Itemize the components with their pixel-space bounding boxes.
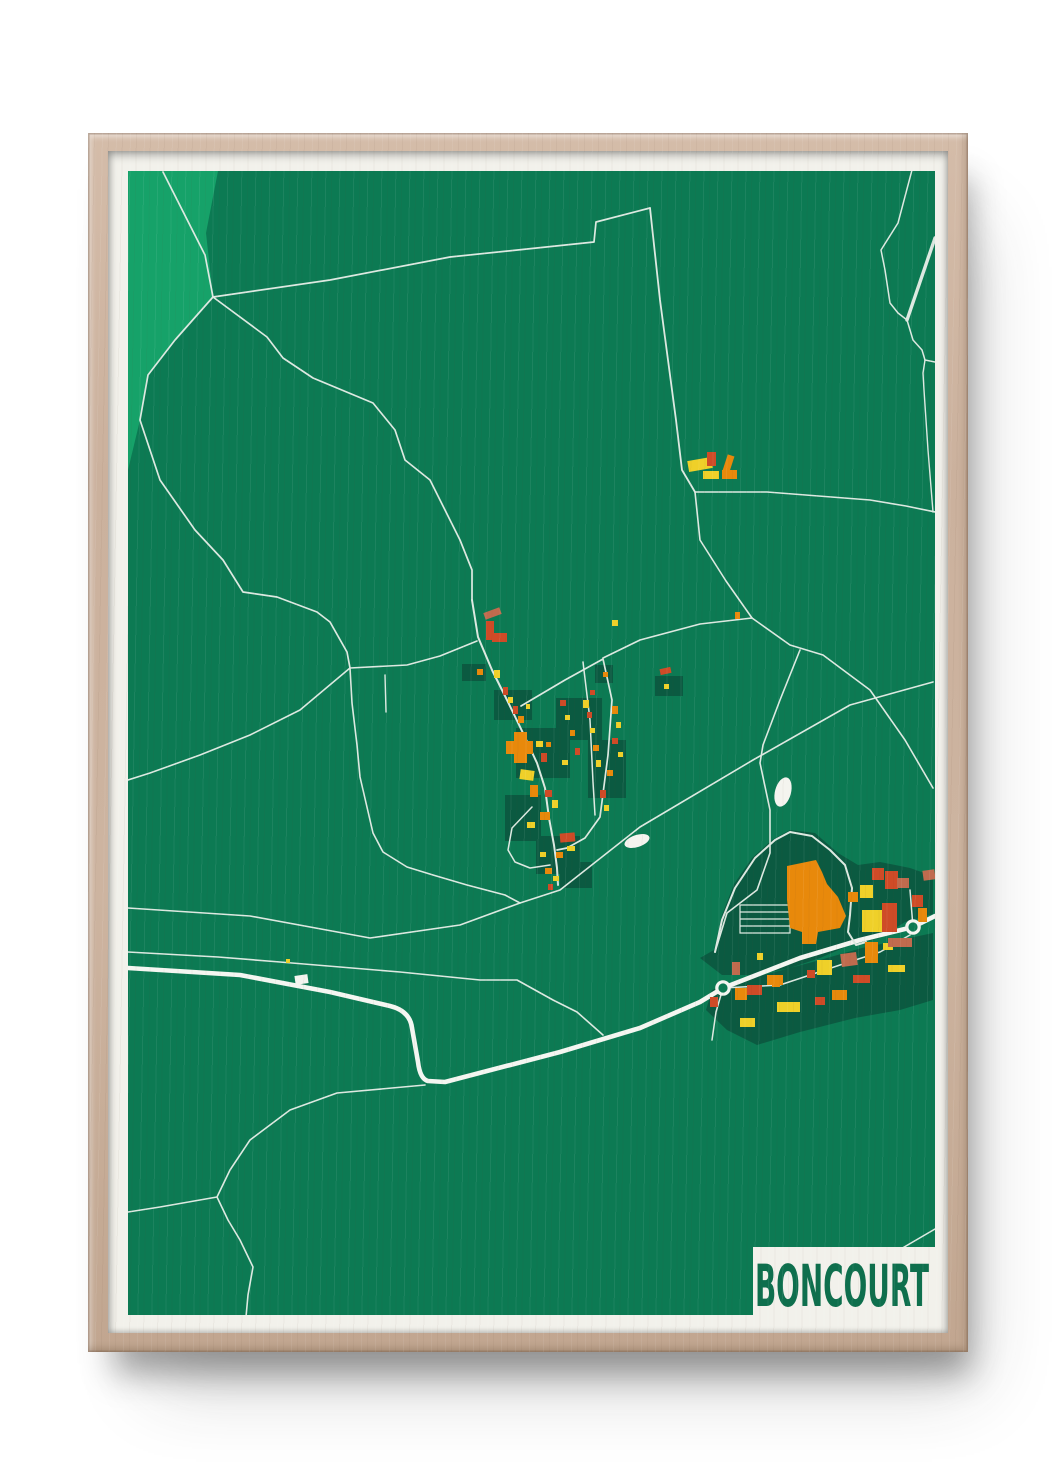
building bbox=[888, 938, 912, 947]
title-block: BONCOURT bbox=[753, 1247, 935, 1315]
building bbox=[922, 869, 935, 881]
building bbox=[530, 785, 538, 797]
building bbox=[536, 741, 543, 747]
building bbox=[832, 990, 847, 1000]
poster-mat: BONCOURT bbox=[108, 151, 948, 1333]
building bbox=[707, 452, 716, 466]
building bbox=[513, 706, 518, 714]
building bbox=[503, 687, 508, 695]
building bbox=[575, 748, 580, 755]
building bbox=[722, 470, 737, 479]
building bbox=[548, 884, 553, 890]
building bbox=[527, 822, 535, 828]
building bbox=[600, 790, 606, 798]
building bbox=[593, 745, 599, 751]
village-plot bbox=[560, 862, 592, 888]
building bbox=[710, 997, 718, 1007]
building bbox=[567, 846, 575, 851]
building bbox=[807, 970, 815, 978]
building bbox=[918, 908, 927, 922]
building bbox=[703, 471, 719, 479]
building bbox=[897, 878, 909, 888]
building bbox=[888, 965, 905, 972]
building bbox=[477, 669, 483, 675]
roundabout bbox=[717, 982, 729, 994]
road-field-stub bbox=[385, 675, 386, 712]
building bbox=[777, 1002, 800, 1012]
poster-frame: BONCOURT bbox=[88, 133, 968, 1352]
building bbox=[596, 760, 601, 767]
building bbox=[815, 997, 825, 1005]
building bbox=[526, 704, 530, 709]
building bbox=[583, 700, 589, 708]
building bbox=[732, 962, 740, 975]
building bbox=[607, 770, 613, 776]
building bbox=[492, 633, 507, 642]
building bbox=[840, 952, 858, 967]
building bbox=[518, 716, 524, 723]
building bbox=[664, 684, 669, 689]
building bbox=[872, 868, 884, 880]
building bbox=[545, 790, 552, 797]
building bbox=[612, 620, 618, 626]
building bbox=[541, 753, 547, 762]
building bbox=[604, 805, 609, 811]
boncourt-map-poster: BONCOURT bbox=[128, 171, 935, 1315]
building bbox=[560, 832, 576, 842]
building bbox=[562, 760, 568, 765]
map-layers bbox=[128, 171, 935, 1315]
building bbox=[912, 895, 923, 907]
building bbox=[494, 670, 500, 678]
building bbox=[519, 769, 534, 781]
building bbox=[882, 903, 897, 932]
building bbox=[570, 730, 575, 736]
page-background: BONCOURT bbox=[0, 0, 1058, 1480]
building bbox=[603, 672, 608, 677]
building bbox=[553, 876, 559, 881]
building bbox=[560, 700, 566, 706]
building bbox=[540, 852, 546, 857]
building bbox=[556, 852, 563, 858]
building bbox=[545, 868, 552, 874]
building bbox=[853, 975, 870, 983]
building bbox=[612, 706, 618, 714]
building bbox=[587, 712, 592, 718]
poster-title: BONCOURT bbox=[755, 1252, 929, 1315]
building bbox=[618, 752, 623, 757]
building bbox=[552, 800, 558, 808]
building bbox=[860, 885, 873, 898]
building bbox=[735, 612, 740, 619]
building bbox=[772, 980, 780, 987]
building bbox=[540, 812, 550, 820]
building bbox=[817, 960, 832, 975]
building bbox=[590, 690, 595, 695]
building bbox=[590, 728, 595, 733]
building bbox=[565, 715, 570, 720]
building bbox=[286, 959, 290, 963]
building bbox=[757, 953, 763, 960]
building bbox=[862, 910, 885, 932]
building bbox=[546, 742, 551, 747]
building bbox=[885, 871, 898, 889]
building bbox=[865, 942, 878, 963]
roundabout bbox=[907, 921, 919, 933]
building bbox=[616, 722, 621, 728]
building bbox=[735, 988, 747, 1000]
building bbox=[294, 974, 308, 985]
building bbox=[848, 892, 858, 902]
building bbox=[740, 1018, 755, 1027]
building bbox=[612, 738, 618, 744]
building bbox=[747, 985, 762, 995]
building bbox=[514, 732, 527, 763]
building bbox=[508, 697, 513, 703]
